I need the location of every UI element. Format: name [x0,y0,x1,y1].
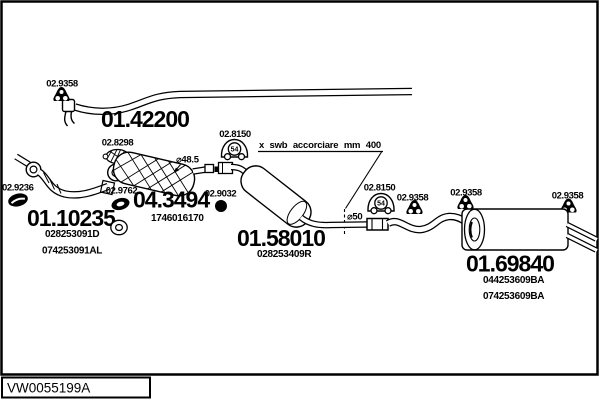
down-pipe-code: 01.10235 [27,205,116,231]
rear-muffler-code: 01.69840 [466,251,554,277]
clamp-part-label: 02.8298 [102,138,134,149]
inlet-sleeve [219,163,233,174]
rear-muffler-oem1: 044253609BA [483,275,544,286]
catalyst-code: 04.3494 [133,187,210,213]
catalyst-outlet-end [205,165,214,173]
drawing-frame [2,2,598,375]
diagram-canvas: 54 02.9358 01.42200 02.8298 02.9236 [0,0,600,400]
mid-muffler-code: 01.58010 [237,225,325,251]
rear-muffler-oem2: 074253609BA [483,291,544,302]
front-pipe-flange [63,100,75,112]
hanger-part-label: 02.9358 [46,79,78,90]
joint-mark [215,167,219,173]
code-plate-text: VW0055199A [7,381,90,396]
mid-muffler-oem1: 028253409R [257,249,312,260]
down-pipe-oem1: 028253091D [45,229,99,240]
shorten-note: x swb accorciare mm 400 [259,140,381,151]
mount54-part-label: 02.8150 [219,129,251,140]
washer-icon [111,220,127,234]
down-pipe-oem2: 074253091AL [42,246,102,257]
front-pipe-code: 01.42200 [101,106,189,132]
connector-sleeve [367,219,388,231]
nut-part-label: 02.9032 [205,189,237,200]
mount54-part-label: 02.8150 [364,183,396,194]
mid-pipe-diameter: ⌀50 [347,212,362,223]
cat-pipe-diameter: ⌀48.5 [176,155,200,166]
exhaust-parts-diagram: 54 02.9358 01.42200 02.8298 02.9236 [0,0,600,400]
catalyst-oem1: 1746016170 [151,213,204,224]
flange-gasket-label: 02.9236 [2,183,34,194]
nut-icon [215,200,227,212]
